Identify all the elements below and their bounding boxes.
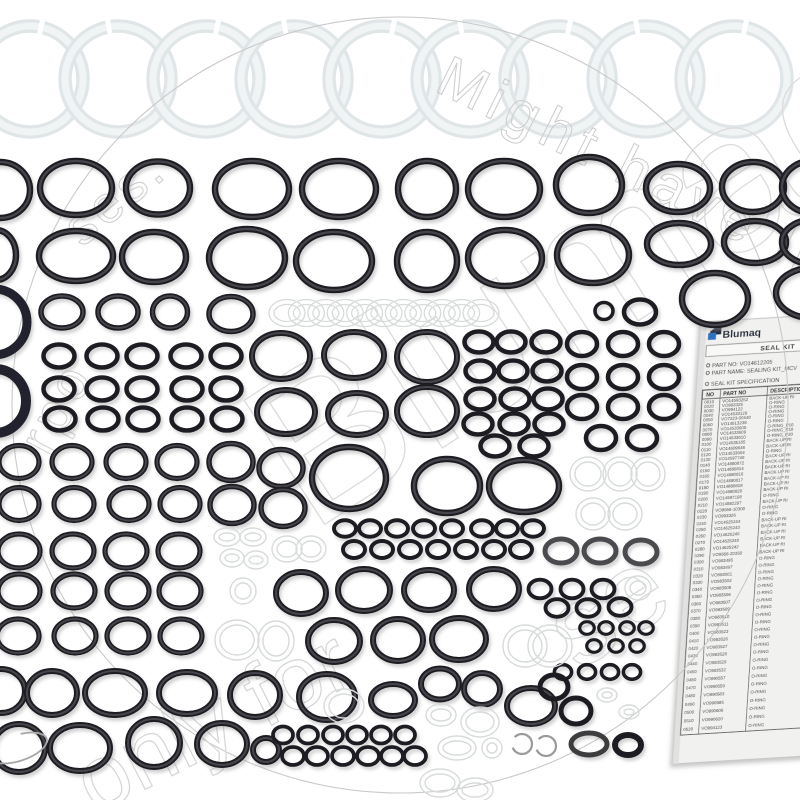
svg-text:Blumaq: Blumaq: [722, 327, 761, 341]
svg-text:NO: NO: [706, 392, 714, 398]
